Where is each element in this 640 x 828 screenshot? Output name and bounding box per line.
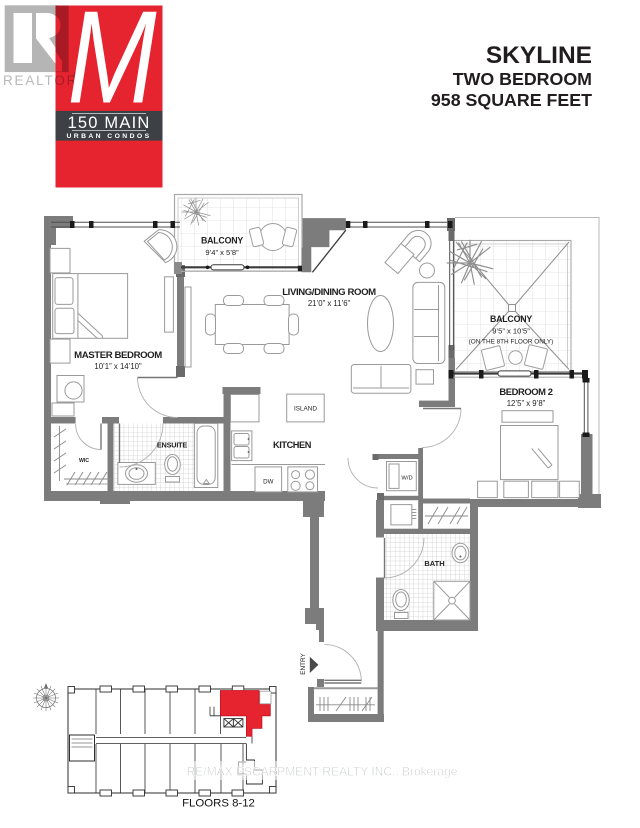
svg-text:9’5” x 10’5”: 9’5” x 10’5” bbox=[492, 327, 530, 336]
svg-text:(ON THE 8TH FLOOR ONLY): (ON THE 8TH FLOOR ONLY) bbox=[469, 339, 554, 346]
svg-text:BEDROOM 2: BEDROOM 2 bbox=[499, 386, 552, 397]
svg-text:12’5” x 9’8”: 12’5” x 9’8” bbox=[507, 399, 546, 408]
svg-text:21’0” x 11’6”: 21’0” x 11’6” bbox=[308, 299, 351, 308]
svg-text:FLOORS 8-12: FLOORS 8-12 bbox=[182, 798, 255, 810]
svg-text:SKYLINE: SKYLINE bbox=[486, 42, 592, 69]
svg-text:LIVING/DINING ROOM: LIVING/DINING ROOM bbox=[282, 287, 376, 298]
svg-text:10’1” x 14’10”: 10’1” x 14’10” bbox=[94, 362, 142, 371]
svg-text:RE/MAX ESCARPMENT REALTY INC.,: RE/MAX ESCARPMENT REALTY INC., Brokerage bbox=[187, 765, 458, 779]
svg-text:ENSUITE: ENSUITE bbox=[157, 441, 188, 450]
svg-text:BALCONY: BALCONY bbox=[201, 236, 243, 246]
svg-text:WIC: WIC bbox=[79, 458, 89, 464]
svg-text:KITCHEN: KITCHEN bbox=[273, 440, 312, 450]
svg-text:TWO BEDROOM: TWO BEDROOM bbox=[453, 69, 592, 89]
svg-text:9’4” x 5’8”: 9’4” x 5’8” bbox=[205, 248, 239, 257]
svg-text:958 SQUARE FEET: 958 SQUARE FEET bbox=[431, 90, 592, 110]
svg-text:URBAN CONDOS: URBAN CONDOS bbox=[66, 133, 151, 140]
svg-text:ISLAND: ISLAND bbox=[294, 406, 317, 413]
svg-text:150 MAIN: 150 MAIN bbox=[68, 114, 151, 132]
svg-text:BALCONY: BALCONY bbox=[490, 314, 532, 324]
svg-text:MASTER BEDROOM: MASTER BEDROOM bbox=[74, 350, 162, 361]
svg-text:DW: DW bbox=[263, 479, 273, 486]
svg-text:ENTRY: ENTRY bbox=[300, 652, 307, 674]
svg-text:BATH: BATH bbox=[424, 559, 444, 568]
svg-text:W/D: W/D bbox=[401, 476, 412, 482]
